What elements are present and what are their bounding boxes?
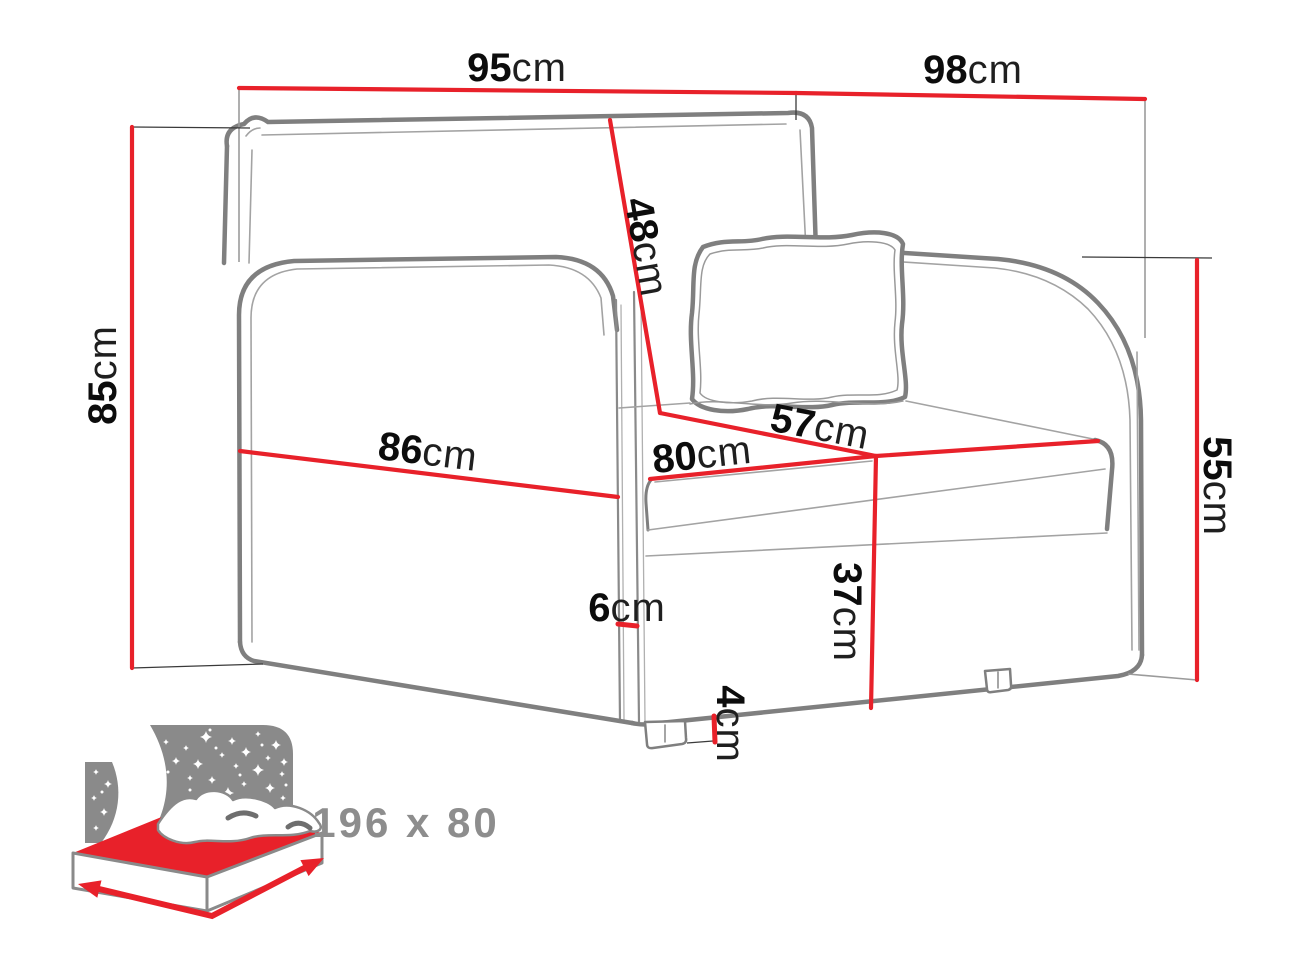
- dim-label-front-width: 95cm: [467, 48, 567, 88]
- dim-label-side-depth: 98cm: [923, 50, 1023, 90]
- bolster-right-cap: [1095, 440, 1112, 529]
- seat-cushion-left-edge: [646, 480, 651, 530]
- dim-unit: cm: [512, 46, 567, 90]
- dim-unit: cm: [420, 430, 480, 480]
- dim-line-98: [796, 93, 1145, 99]
- dim-unit: cm: [708, 707, 752, 762]
- dim-value: 48: [616, 194, 667, 245]
- dim-value: 80: [650, 434, 699, 482]
- dim-value: 4: [708, 685, 752, 707]
- diagram-canvas: [0, 0, 1298, 974]
- dim-unit: cm: [825, 607, 869, 662]
- dimension-diagram: 95cm 98cm 85cm 48cm 57cm 80cm 86cm 55cm …: [0, 0, 1298, 974]
- dim-value: 85: [81, 380, 125, 425]
- dim-unit: cm: [610, 586, 665, 630]
- dim-value: 37: [825, 562, 869, 607]
- sofa-line-art: [224, 113, 1142, 749]
- ptr-55-top: [1082, 257, 1212, 258]
- bed-icon: [73, 725, 324, 916]
- sleeping-area-label: 196 x 80: [312, 799, 500, 847]
- dim-line-57-right: [876, 441, 1098, 456]
- dim-unit: cm: [81, 325, 125, 380]
- dimension-lines: [132, 88, 1197, 742]
- dim-unit: cm: [968, 48, 1023, 92]
- dim-unit: cm: [1195, 481, 1239, 536]
- dim-value: 98: [923, 48, 968, 92]
- backrest-left-edge: [224, 146, 227, 263]
- dim-value: 95: [467, 46, 512, 90]
- dim-value: 86: [376, 424, 426, 473]
- dim-label-seat-width: 80cm: [650, 430, 753, 480]
- left-arm-front-edges: [616, 292, 639, 722]
- dim-label-arm-height: 55cm: [1197, 436, 1237, 536]
- dim-label-seat-height: 37cm: [827, 562, 867, 662]
- left-arm-bottom: [240, 642, 632, 723]
- dim-label-leg-height: 4cm: [710, 685, 750, 763]
- dim-label-total-height: 85cm: [83, 325, 123, 425]
- dim-line-37: [871, 456, 876, 708]
- blanket: [158, 791, 321, 843]
- dim-value: 6: [588, 586, 610, 630]
- left-arm-front-edges-thin: [621, 296, 645, 722]
- ptr-85-bottom: [132, 664, 263, 668]
- pillow: [691, 232, 906, 411]
- dim-unit: cm: [623, 238, 676, 300]
- dim-label-arm-thickness: 6cm: [588, 588, 666, 628]
- ptr-55-bottom: [1128, 674, 1197, 680]
- dim-unit: cm: [694, 428, 754, 478]
- dim-value: 55: [1195, 436, 1239, 481]
- star-panel-left: [85, 762, 118, 843]
